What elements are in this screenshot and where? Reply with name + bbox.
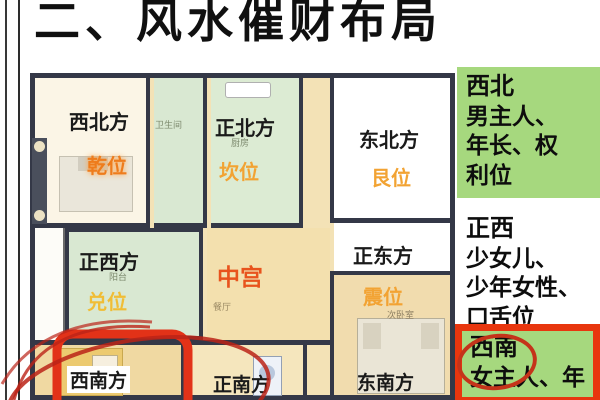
position-label-qian: 乾位 [87, 150, 127, 179]
sink-icon [225, 82, 271, 98]
position-label-gen: 艮位 [371, 162, 411, 191]
slide: 二、风水催财布局 西北方 乾位 卫生间 正北方 厨房 坎位 东北方 艮位 正西方… [0, 0, 600, 400]
room-bathroom [154, 78, 207, 228]
legend-direction: 正西 [466, 214, 591, 244]
legend-direction: 西南 [470, 333, 585, 363]
position-label-kan: 坎位 [219, 156, 259, 185]
position-label-zhen: 震位 [363, 281, 403, 310]
room-north-kitchen [211, 78, 303, 228]
room-label-northwest: 西北方 [69, 106, 129, 135]
legend-box-southwest-highlighted: 西南 女主人、年 [455, 324, 600, 400]
balcony-sublabel: 阳台 [109, 270, 127, 283]
bedroom-sublabel: 次卧室 [387, 308, 414, 321]
outside-strip [35, 228, 65, 340]
room-west-balcony [65, 228, 203, 340]
legend-box-west: 正西 少女儿、 少年女性、 口舌位 [457, 209, 600, 325]
kitchen-sublabel: 厨房 [231, 136, 249, 149]
room-label-center: 中宫 [217, 258, 263, 292]
legend-direction: 西北 [466, 72, 591, 102]
bay-window-icon [32, 138, 47, 224]
room-label-east: 正东方 [353, 240, 413, 269]
legend-description: 男主人、 年长、权 利位 [466, 102, 591, 190]
legend-box-northwest: 西北 男主人、 年长、权 利位 [457, 67, 600, 198]
room-label-northeast: 东北方 [359, 124, 419, 153]
bathroom-label: 卫生间 [155, 118, 182, 131]
floor-plan: 西北方 乾位 卫生间 正北方 厨房 坎位 东北方 艮位 正西方 阳台 兑位 中宫… [30, 73, 455, 400]
slide-edge-line [18, 0, 20, 400]
room-label-south: 正南方 [213, 370, 270, 397]
room-label-southwest: 西南方 [67, 366, 130, 393]
page-title: 二、风水催财布局 [34, 0, 464, 49]
position-label-dui: 兑位 [87, 286, 127, 315]
legend-description: 少女儿、 少年女性、 口舌位 [466, 244, 591, 332]
dining-sublabel: 餐厅 [213, 300, 231, 313]
slide-edge-line [5, 0, 7, 400]
room-label-southeast: 东南方 [357, 368, 414, 395]
legend-description: 女主人、年 [470, 363, 585, 392]
